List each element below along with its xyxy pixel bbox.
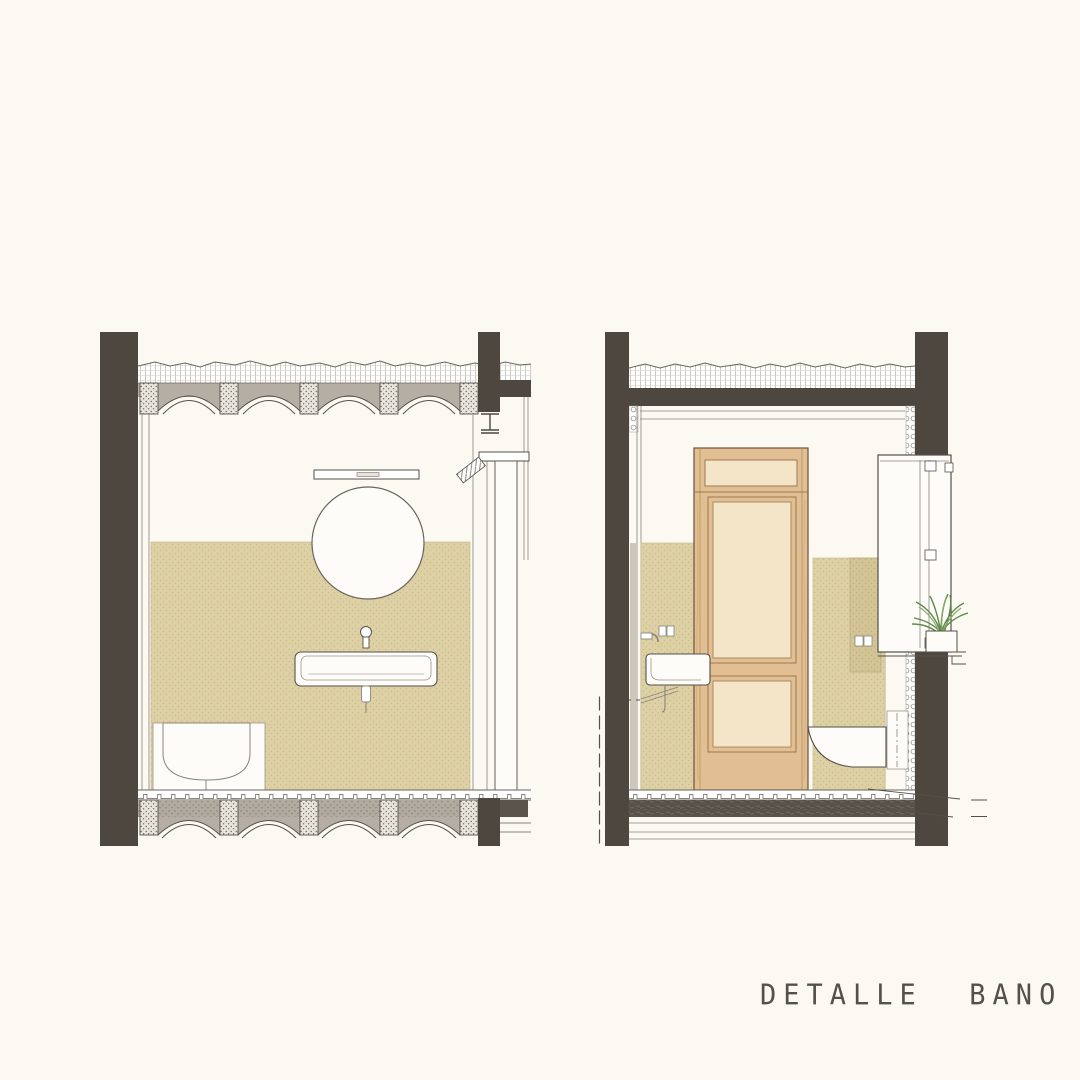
upper-panel — [713, 502, 791, 658]
floor-beam — [220, 800, 238, 835]
socket — [864, 636, 872, 646]
right-column-top — [478, 332, 500, 412]
floor-tile-band — [138, 790, 531, 800]
ceiling-beam — [300, 383, 318, 414]
transom-panel — [705, 460, 797, 486]
concealed-cistern — [887, 711, 908, 769]
concrete-beam — [629, 388, 915, 406]
ceiling-beam — [140, 383, 158, 414]
ceiling-screed — [138, 361, 531, 383]
floor-vault — [138, 790, 531, 838]
roof-screed — [629, 363, 915, 388]
floor-beam — [140, 800, 158, 835]
left-section — [100, 332, 531, 846]
bracket — [457, 457, 486, 483]
ceiling-lines — [640, 411, 905, 419]
bottle-trap — [362, 686, 371, 702]
drawing-title: DETALLE BANO — [760, 979, 1062, 1012]
wall-plaster — [630, 543, 636, 790]
floor-beam — [460, 800, 478, 835]
wall-lining — [142, 413, 149, 790]
floor-beam — [380, 800, 398, 835]
socket — [659, 626, 666, 636]
round-mirror — [312, 487, 424, 599]
right-column-foot — [478, 798, 500, 846]
floor-beam — [300, 800, 318, 835]
ceiling-vault — [138, 383, 531, 414]
door-leaf-section — [495, 461, 517, 790]
ceiling-beam — [380, 383, 398, 414]
floor-buildup — [629, 790, 915, 839]
tile-nib-wall — [850, 558, 881, 672]
frame-head — [479, 452, 529, 461]
section-drawing — [0, 0, 1080, 1080]
socket — [855, 636, 863, 646]
lower-panel — [713, 681, 791, 747]
left-column — [100, 332, 138, 846]
left-column — [605, 332, 629, 846]
wall-faucet — [641, 633, 652, 639]
slab-lines — [629, 823, 915, 839]
wood-door — [694, 448, 808, 790]
lintel-beam — [478, 380, 531, 397]
catch — [945, 463, 953, 472]
socket — [667, 626, 674, 636]
mortar-bed — [629, 800, 915, 817]
floor-tile-band — [629, 790, 915, 800]
ceiling-beam — [460, 383, 478, 414]
architectural-drawing: DETALLE BANO — [0, 0, 1080, 1080]
ceiling-beam — [220, 383, 238, 414]
right-section — [600, 332, 988, 846]
steel-beam — [481, 411, 499, 433]
hinge — [925, 461, 936, 471]
light-fixture — [314, 470, 419, 479]
hinge — [925, 550, 936, 560]
planter-box — [926, 631, 957, 652]
